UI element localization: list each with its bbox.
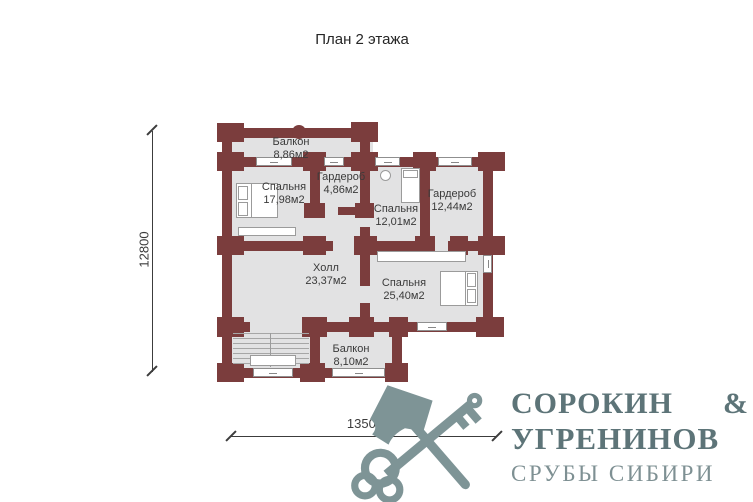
crossed-axe-and-key-icon [341,376,516,502]
log-end [351,152,378,171]
dimension-line [152,131,153,372]
axe-icon [370,385,465,484]
door-opening [434,241,448,251]
log-end [351,122,378,142]
room-name: Балкон [301,343,401,356]
bed-line [465,271,466,306]
room-area: 25,40м2 [354,290,454,303]
room-label-balcony-bottom: Балкон 8,10м2 [301,343,401,369]
log-end [217,236,244,255]
logo-ampersand: & [723,387,749,421]
room-name: Спальня [354,277,454,290]
room-label-bedroom-3: Спальня 25,40м2 [354,277,454,303]
room-area: 8,86м2 [241,149,341,162]
pillow [403,170,418,178]
log-end [354,236,377,255]
log-end [478,152,505,171]
window [375,157,400,166]
logo-text: СОРОКИН & УГРЕНИНОВ СРУБЫ СИБИРИ [511,387,749,489]
door-opening [324,207,338,215]
window [253,368,293,377]
log-end [303,236,326,255]
log-end [389,317,408,337]
log-end [349,317,374,337]
log-end [478,236,505,255]
room-name: Холл [276,262,376,275]
room-label-wardrobe-2: Гардероб 12,44м2 [402,188,502,214]
pillow [467,289,476,303]
log-end [217,152,244,171]
dimension-value-vertical: 12800 [137,218,152,282]
built-in-wardrobe [377,251,466,262]
room-area: 8,10м2 [301,356,401,369]
log-end [476,317,504,337]
logo-name-part: СОРОКИН [511,387,673,421]
room-name: Гардероб [402,188,502,201]
room-area: 12,44м2 [402,201,502,214]
room-name: Балкон [241,136,341,149]
logo-name-line-2: УГРЕНИНОВ [511,421,749,457]
room-name: Гардероб [291,171,391,184]
room-area: 12,01м2 [346,216,446,229]
dresser [238,227,296,236]
logo-tagline: СРУБЫ СИБИРИ [511,459,749,489]
window [417,322,447,331]
log-end [217,123,244,142]
room-label-wardrobe-1: Гардероб 4,86м2 [291,171,391,197]
door-opening [333,241,355,251]
pillow [467,273,476,287]
room-area: 4,86м2 [291,184,391,197]
window [438,157,472,166]
stair-landing [250,355,296,366]
page-title: План 2 этажа [262,31,462,48]
logo-name-line-1: СОРОКИН & [511,387,749,421]
room-label-balcony-top: Балкон 8,86м2 [241,136,341,162]
window [483,255,492,273]
floor-plan-page: План 2 этажа [0,0,753,502]
